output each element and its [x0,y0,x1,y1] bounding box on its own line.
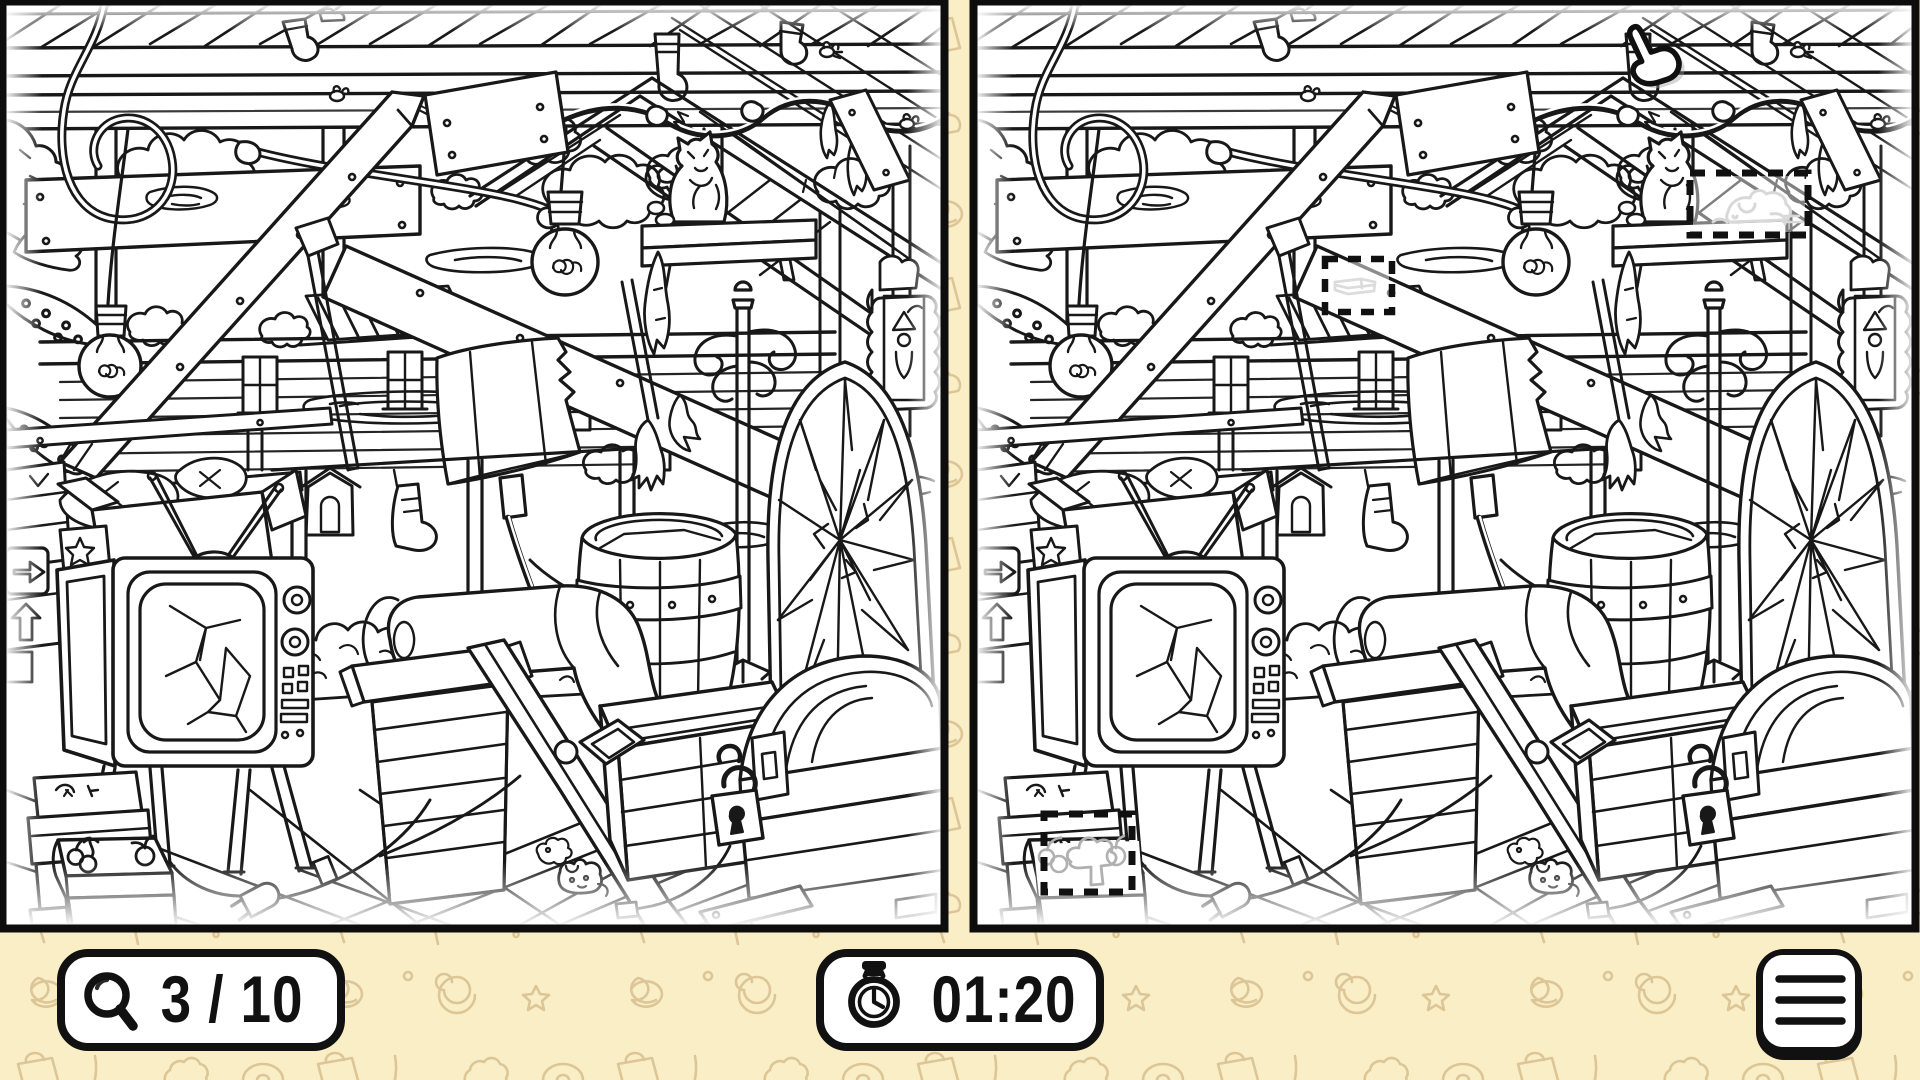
svg-text:01:20: 01:20 [932,962,1077,1036]
svg-text:3 / 10: 3 / 10 [161,962,304,1036]
